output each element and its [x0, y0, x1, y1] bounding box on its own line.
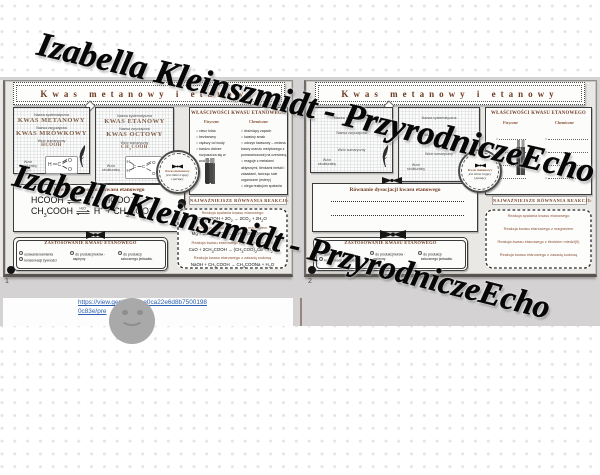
svg-text:O: O [68, 158, 72, 164]
svg-text:H: H [127, 159, 130, 164]
svg-text:C: C [142, 164, 146, 169]
svg-text:O: O [152, 160, 156, 165]
svg-text:H: H [127, 168, 130, 173]
